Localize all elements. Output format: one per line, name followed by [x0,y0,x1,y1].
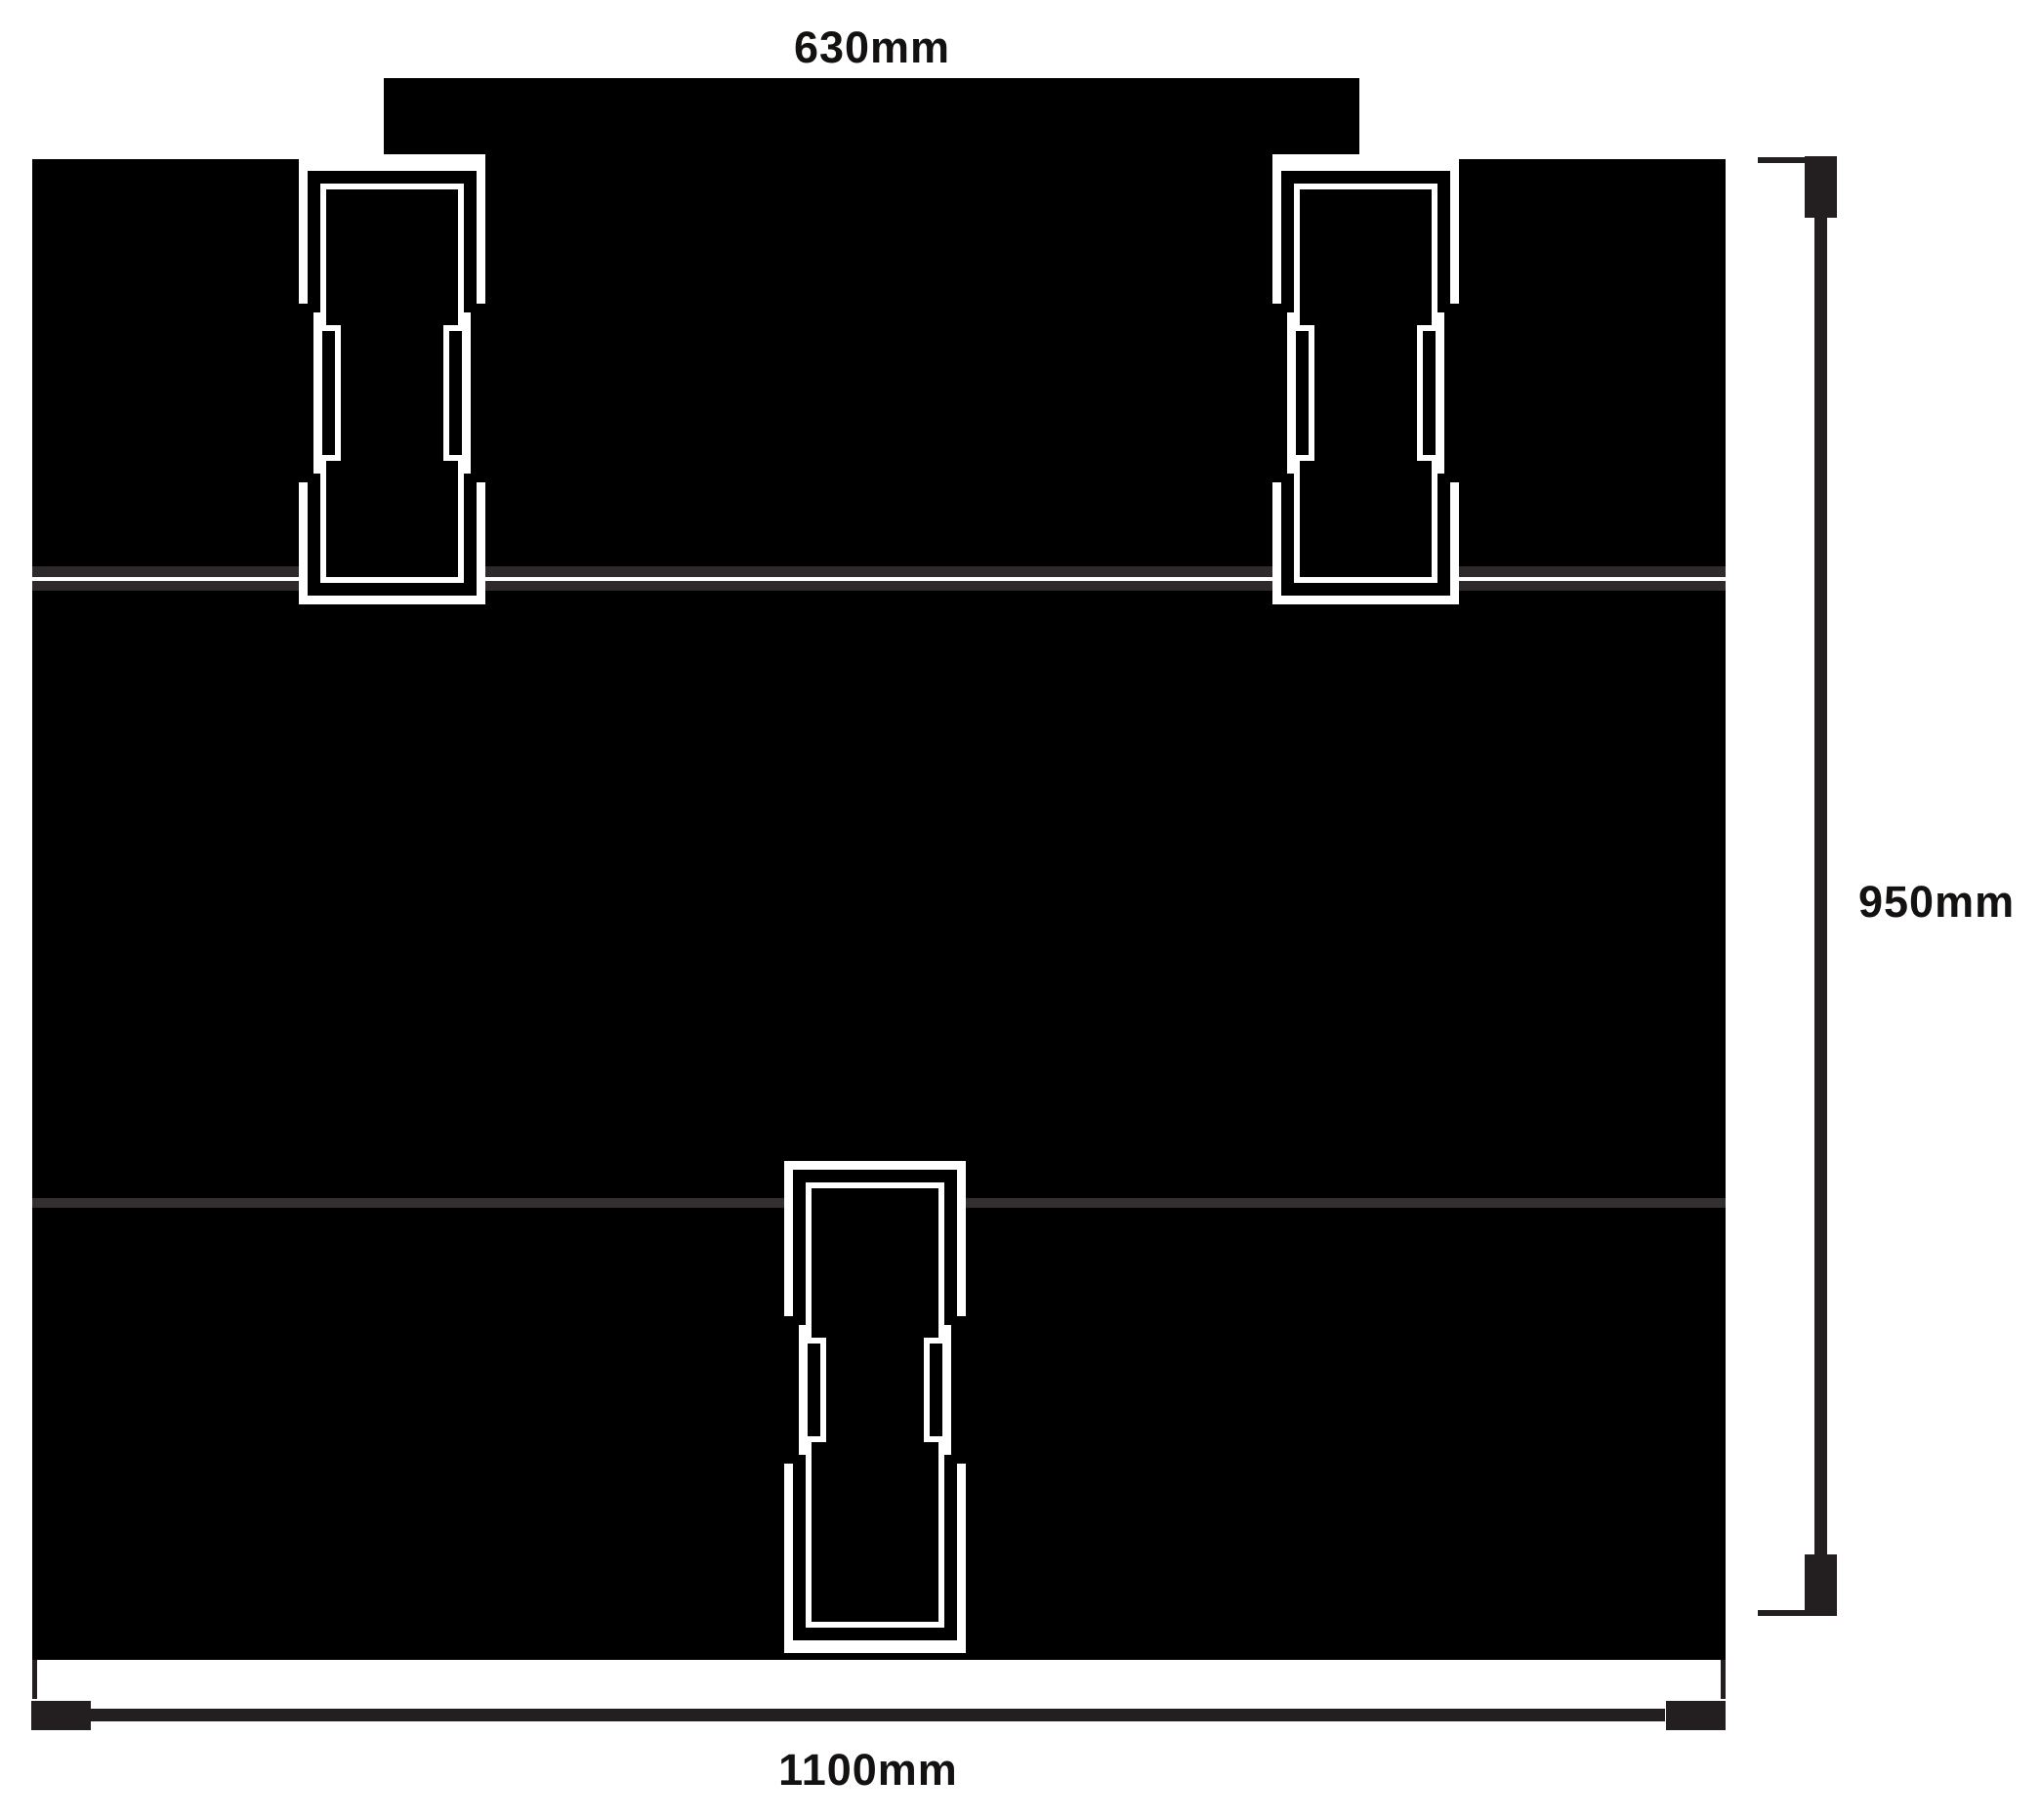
latch-bottom [793,1170,957,1640]
seam-upper-line-a [32,566,1726,577]
top-width-dim-label: 630mm [794,25,950,69]
dimension-diagram: 630mm 950mm 1100mm [0,0,2041,1820]
drawing-canvas [0,0,2041,1820]
latch-left [308,171,477,596]
latch-right [1281,171,1450,596]
seam-upper-gap [32,577,1726,581]
width-dim-end-left [31,1701,91,1730]
bottom-width-dim-label: 1100mm [778,1748,958,1792]
latch-right-group [1272,154,1459,604]
side-height-dim-label: 950mm [1858,880,2015,924]
height-dim-end-top [1805,156,1837,218]
base-strip-left-cap [32,1660,37,1699]
height-dim-end-bottom [1805,1554,1837,1616]
height-dim-line [1814,159,1827,1616]
width-dim-end-right [1666,1701,1726,1730]
width-dim-line [91,1709,1665,1721]
top-cap [384,78,1359,160]
base-strip-right-cap [1721,1660,1726,1699]
seam-upper-line-b [32,581,1726,591]
